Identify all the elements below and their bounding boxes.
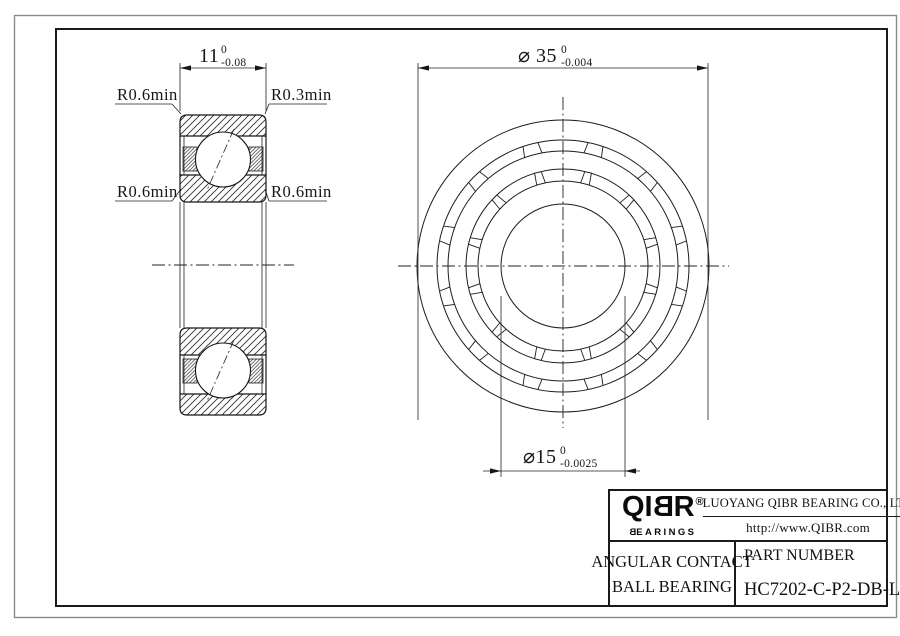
company-logo: QIBR® BEARINGS <box>610 491 703 540</box>
cage-section-top-left <box>183 147 197 171</box>
title-block-header-row: QIBR® BEARINGS LUOYANG QIBR BEARING CO.,… <box>610 491 886 542</box>
part-number-value: HC7202-C-P2-DB-L <box>744 580 900 601</box>
front-view: ⌀ 35 0 -0.004 ⌀15 0 -0.0025 <box>398 44 729 477</box>
drawing-page: 11 0 -0.08 R0.6min R0.3min R0.6min R0.6m… <box>0 0 900 636</box>
company-website: http://www.QIBR.com <box>703 517 900 540</box>
registered-trademark-icon: ® <box>696 496 704 508</box>
cage-section-bottom-right <box>249 359 263 383</box>
product-type-line1: ANGULAR CONTACT <box>591 549 752 574</box>
product-type-cell: ANGULAR CONTACT BALL BEARING <box>610 542 736 605</box>
logo-r: R <box>674 491 695 523</box>
title-block: QIBR® BEARINGS LUOYANG QIBR BEARING CO.,… <box>608 489 888 607</box>
bore-dim-value: ⌀15 <box>523 446 557 468</box>
dim-arrow-left <box>180 65 191 70</box>
logo-subtitle: BEARINGS <box>627 527 703 538</box>
width-dim-tol-lower: -0.08 <box>221 57 246 69</box>
logo-qi: QI <box>622 491 653 523</box>
ball-section-bottom <box>196 343 251 398</box>
section-view: 11 0 -0.08 R0.6min R0.3min R0.6min R0.6m… <box>115 44 332 415</box>
od-dim-tol-lower: -0.004 <box>561 57 593 69</box>
logo-sub-rest: EARINGS <box>636 527 696 538</box>
section-bottom-half <box>180 328 266 415</box>
logo-sub-mirrored-b: B <box>627 527 636 538</box>
od-dim-tol-upper: 0 <box>561 44 567 56</box>
dim-arrow-right <box>255 65 266 70</box>
cage-section-top-right <box>249 147 263 171</box>
r-label-top-right: R0.3min <box>271 85 332 104</box>
company-name: LUOYANG QIBR BEARING CO., LTD <box>703 491 900 517</box>
r-label-top-left: R0.6min <box>117 85 178 104</box>
r-label-mid-right: R0.6min <box>271 182 332 201</box>
width-dim-value: 11 <box>199 45 219 67</box>
dim-arrow-left <box>418 65 429 70</box>
company-info: LUOYANG QIBR BEARING CO., LTD http://www… <box>703 491 900 540</box>
product-type-line2: BALL BEARING <box>612 574 732 599</box>
bore-dim-tol-upper: 0 <box>560 445 566 457</box>
logo-wordmark: QIBR® <box>622 494 703 526</box>
od-dim-value: ⌀ 35 <box>518 45 557 67</box>
dim-arrow-right <box>625 468 636 473</box>
cage-section-bottom-left <box>183 359 197 383</box>
dim-arrow-right <box>697 65 708 70</box>
bore-dimension: ⌀15 0 -0.0025 <box>483 296 640 477</box>
part-number-label: PART NUMBER <box>744 547 900 565</box>
title-block-detail-row: ANGULAR CONTACT BALL BEARING PART NUMBER… <box>610 542 886 605</box>
ball-section-top <box>196 132 251 187</box>
r-label-mid-left: R0.6min <box>117 182 178 201</box>
bore-dim-tol-lower: -0.0025 <box>560 458 598 470</box>
part-number-cell: PART NUMBER HC7202-C-P2-DB-L <box>736 542 900 605</box>
width-dim-tol-upper: 0 <box>221 44 227 56</box>
dim-arrow-left <box>490 468 501 473</box>
width-dimension: 11 0 -0.08 <box>180 44 266 111</box>
logo-mirrored-b: B <box>653 494 674 520</box>
section-top-half <box>180 115 266 202</box>
